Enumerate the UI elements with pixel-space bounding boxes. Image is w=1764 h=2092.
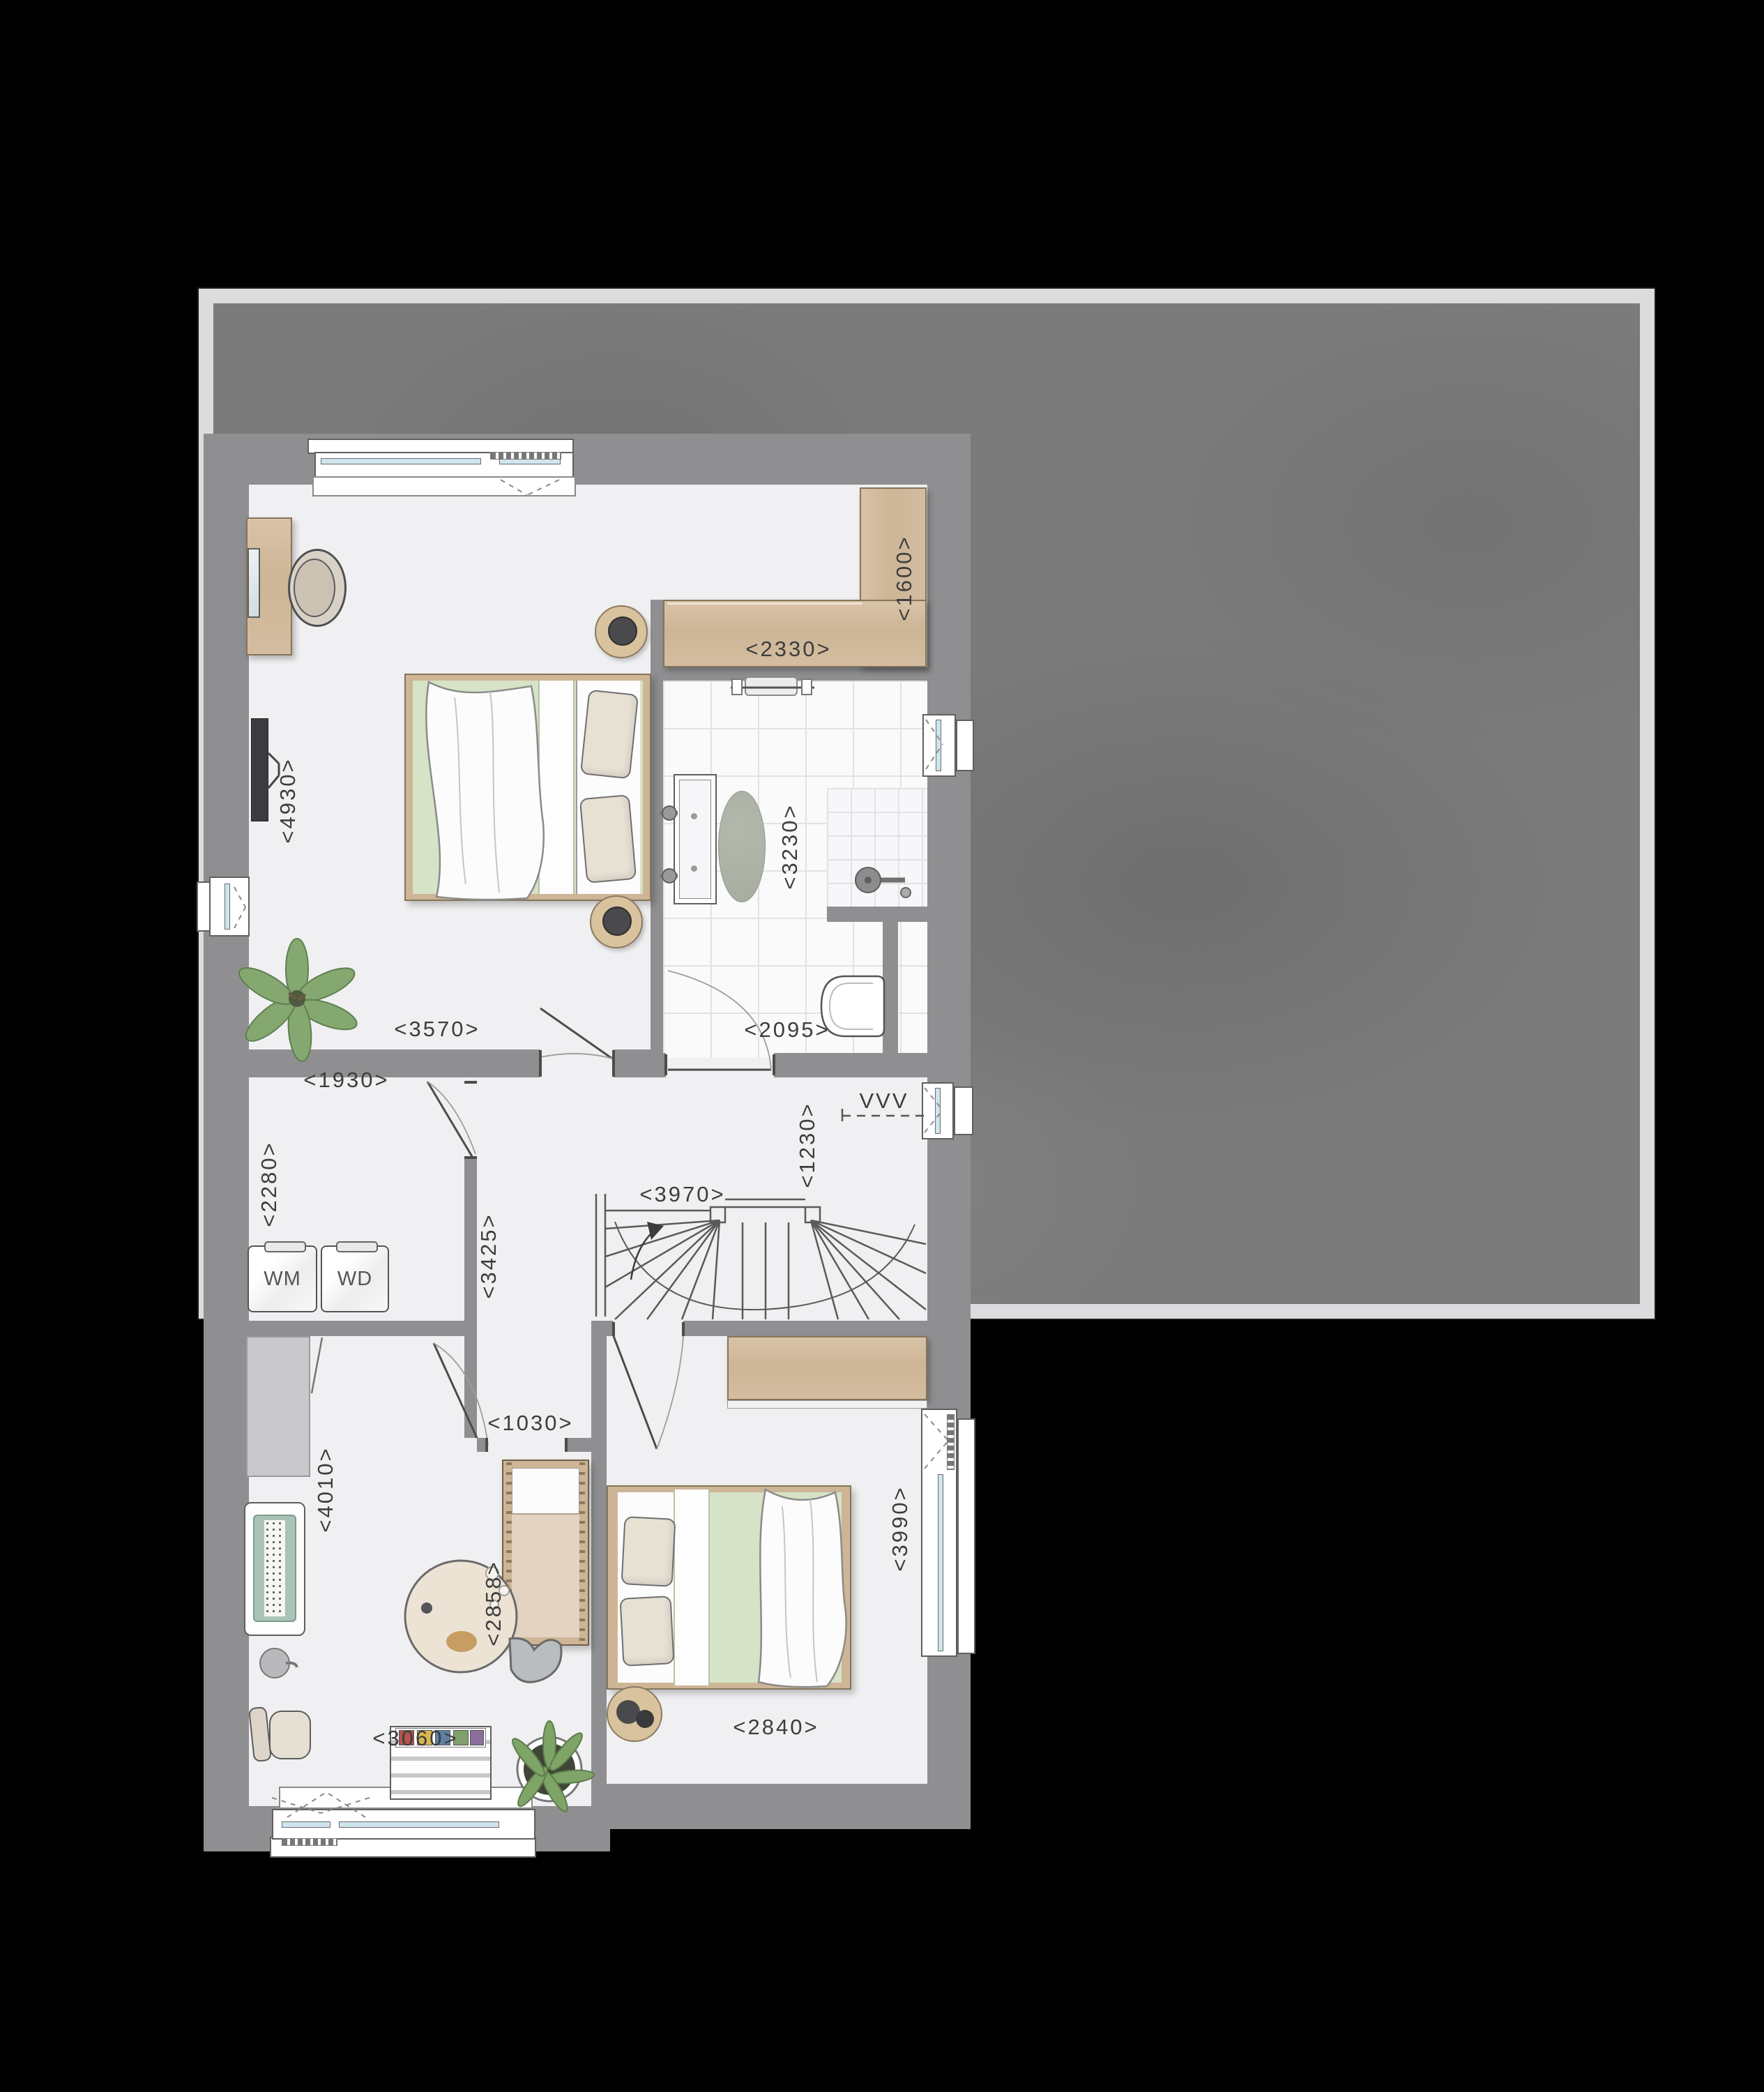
dimension-label: <1030> — [487, 1411, 573, 1436]
blanket-master — [426, 682, 543, 900]
plant-kids — [508, 1721, 594, 1814]
dimension-label: <2095> — [744, 1017, 830, 1043]
door-bedroom2 — [614, 1336, 657, 1449]
dimension-label: <3990> — [888, 1485, 913, 1571]
door-kids — [434, 1343, 477, 1438]
dimension-label: <1930> — [303, 1068, 389, 1093]
dimension-label: <2858> — [481, 1560, 506, 1646]
dimension-label: <3425> — [476, 1213, 501, 1298]
dimension-label: <3970> — [639, 1182, 725, 1207]
plant-master — [234, 939, 360, 1062]
faucet-icon — [660, 806, 678, 883]
dimension-label: <3230> — [777, 803, 803, 889]
dimension-label: <2280> — [257, 1141, 282, 1227]
dimension-label: <2840> — [733, 1715, 819, 1740]
toilet — [821, 976, 884, 1036]
staircase — [596, 1194, 926, 1319]
dimension-label: <3060> — [372, 1726, 458, 1751]
dimension-label: <1230> — [795, 1102, 820, 1188]
dimension-label: <1600> — [892, 535, 917, 621]
linework-layer — [0, 0, 1764, 2092]
door-laundry — [427, 1082, 473, 1158]
dimension-label: <2330> — [745, 637, 831, 662]
floorplan-canvas: WM WD — [0, 0, 1764, 2092]
mech-vent-label: VVV — [859, 1089, 908, 1114]
dimension-label: <3570> — [394, 1017, 480, 1042]
stair-direction-arrow — [631, 1231, 654, 1280]
dimension-label: <4930> — [275, 757, 301, 843]
shower-head-icon — [856, 867, 911, 897]
dimension-label: <4010> — [313, 1446, 338, 1532]
blanket-bedroom2 — [759, 1490, 846, 1687]
door-master — [540, 1008, 612, 1059]
